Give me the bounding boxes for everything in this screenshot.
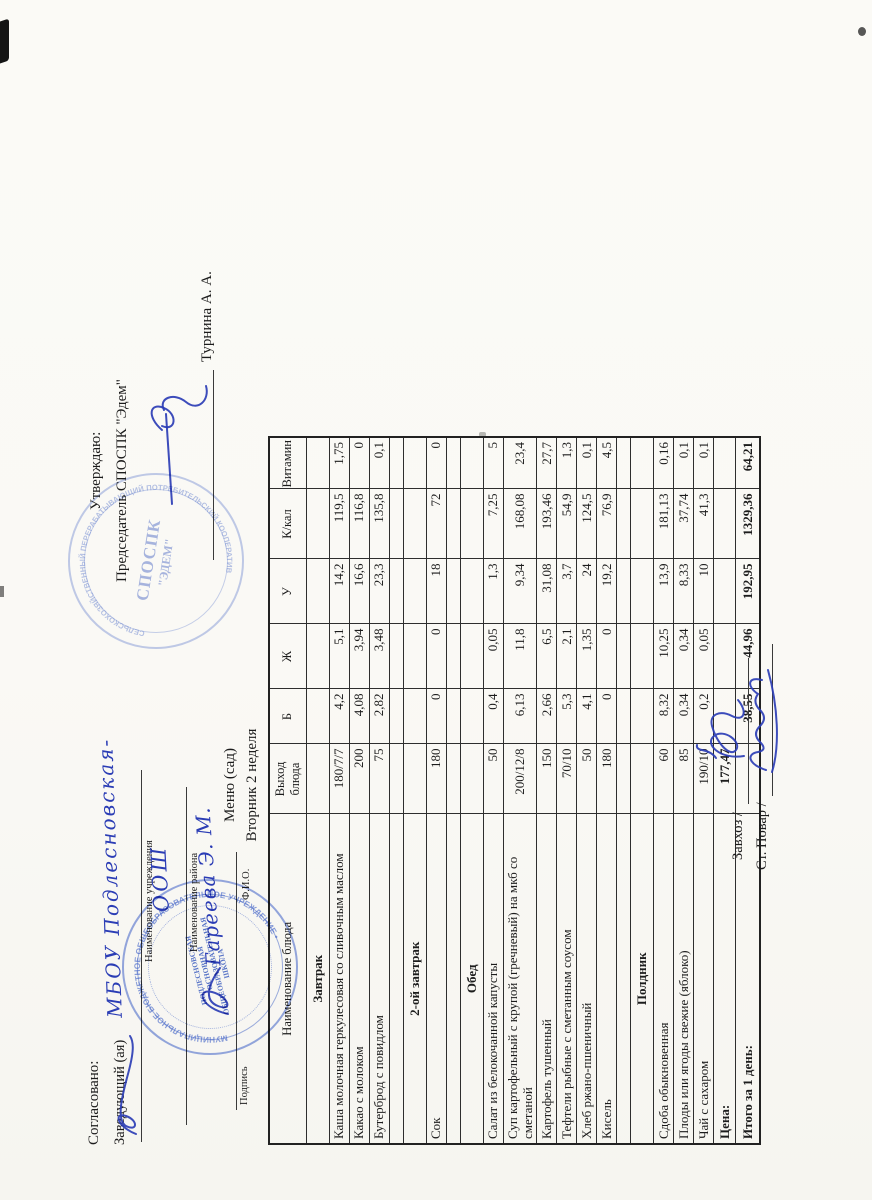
carbs-value: 13,9 [654,559,674,624]
protein-value: 0 [426,689,446,744]
carbs-value [403,559,426,624]
protein-value: 4,2 [329,689,349,744]
supply-manager-label: Завхоз / [730,812,747,860]
protein-value: 4,08 [349,689,369,744]
protein-value: 8,32 [654,689,674,744]
dish-row: Хлеб ржано-пшеничный504,11,3524124,50,1 [577,437,597,1144]
fat-value [389,624,403,689]
fat-value: 0,34 [674,624,694,689]
fat-value: 3,94 [349,624,369,689]
dish-row: Салат из белокочанной капусты500,40,051,… [483,437,503,1144]
dish-name: Бутерброд с повидлом [369,814,389,1144]
section-row: Полдник [631,437,654,1144]
carbs-value: 24 [577,559,597,624]
fat-value: 3,48 [369,624,389,689]
kcal-value: 119,5 [329,489,349,559]
dish-output: 75 [369,744,389,814]
empty-row [617,437,631,1144]
carbs-value: 9,34 [503,559,537,624]
menu-table: Наименование блюда Выход блюда Б Ж У К/к… [268,436,761,1145]
fat-value [306,624,329,689]
kcal-value: 72 [426,489,446,559]
kcal-value: 116,8 [349,489,369,559]
carbs-value: 23,3 [369,559,389,624]
dish-row: Тефтели рыбные с сметанным соусом70/105,… [557,437,577,1144]
dish-row: Суп картофельный с крупой (гречневый) на… [503,437,537,1144]
dish-output: 150 [537,744,557,814]
dish-output: 50 [577,744,597,814]
scanned-page: Согласовано: Заведующий (ая) МБОУ Подлес… [0,0,872,1200]
fat-value: 0 [597,624,617,689]
kcal-value: 124,5 [577,489,597,559]
col-header-kcal: К/кал [269,489,306,559]
protein-value [617,689,631,744]
protein-value: 0,34 [674,689,694,744]
edem-round-stamp: СЕЛЬСКОХОЗЯЙСТВЕННЫЙ ПЕРЕРАБАТЫВАЮЩИЙ ПО… [55,460,256,661]
vitamin-c-value: 23,4 [503,437,537,489]
dish-output [631,744,654,814]
fat-value: 11,8 [503,624,537,689]
vitamin-c-value [306,437,329,489]
fat-value: 5,1 [329,624,349,689]
dish-row: Картофель тушенный1502,666,531,08193,462… [537,437,557,1144]
vitamin-c-value: 0 [349,437,369,489]
vitamin-c-value [617,437,631,489]
carbs-value: 31,08 [537,559,557,624]
dish-name: Плоды или ягоды свежие (яблоко) [674,814,694,1144]
vitamin-c-value: 0,1 [369,437,389,489]
dish-name: Завтрак [306,814,329,1144]
menu-title: Меню (сад) [222,700,239,870]
document: Согласовано: Заведующий (ая) МБОУ Подлес… [0,0,872,1200]
vitamin-c-value: 4,5 [597,437,617,489]
vitamin-c-value [460,437,483,489]
protein-value: 6,13 [503,689,537,744]
protein-value: 0 [597,689,617,744]
dish-output [617,744,631,814]
dish-output: 200 [349,744,369,814]
carbs-value [631,559,654,624]
dish-output: 180/7/7 [329,744,349,814]
vitamin-c-value: 0,1 [674,437,694,489]
senior-cook-label: Ст. Повар / [754,802,771,870]
dish-name: Сок [426,814,446,1144]
dish-output: 200/12/8 [503,744,537,814]
carbs-value: 8,33 [674,559,694,624]
dish-row: Сок1800018720 [426,437,446,1144]
senior-cook-signature [734,660,776,776]
carbs-value [306,559,329,624]
kcal-value: 7,25 [483,489,503,559]
dish-name: Сдоба обыкновенная [654,814,674,1144]
vitamin-c-value [714,437,736,489]
vitamin-c-value: 0 [426,437,446,489]
menu-subtitle: Вторник 2 неделя [244,700,261,870]
kcal-value [446,489,460,559]
protein-value [403,689,426,744]
dish-name [389,814,403,1144]
dish-name: Обед [460,814,483,1144]
dish-name: Какао с молоком [349,814,369,1144]
dish-name: Картофель тушенный [537,814,557,1144]
fat-value [446,624,460,689]
kcal-value: 135,8 [369,489,389,559]
vitamin-c-value: 5 [483,437,503,489]
vitamin-c-value: 64,21 [736,437,761,489]
carbs-value: 1,3 [483,559,503,624]
fat-value: 6,5 [537,624,557,689]
kcal-value: 37,74 [674,489,694,559]
protein-value [460,689,483,744]
vitamin-c-value: 0,1 [577,437,597,489]
kcal-value: 76,9 [597,489,617,559]
protein-value [306,689,329,744]
fat-value [460,624,483,689]
carbs-value [617,559,631,624]
dish-name: Каша молочная геркулесовая со сливочным … [329,814,349,1144]
dish-name: Чай с сахаром [694,814,714,1144]
dish-name [446,814,460,1144]
fat-value [631,624,654,689]
col-header-protein: Б [269,689,306,744]
kcal-value: 181,13 [654,489,674,559]
fat-value [714,624,736,689]
dish-name: Салат из белокочанной капусты [483,814,503,1144]
handwriting-fragment [108,1030,144,1140]
dish-output: 85 [674,744,694,814]
fat-value: 1,35 [577,624,597,689]
menu-table-body: ЗавтракКаша молочная геркулесовая со сли… [306,437,760,1144]
kcal-value: 1329,36 [736,489,761,559]
carbs-value: 16,6 [349,559,369,624]
dish-output [403,744,426,814]
protein-value: 5,3 [557,689,577,744]
vitamin-c-value: 0,16 [654,437,674,489]
dish-row: Плоды или ягоды свежие (яблоко)850,340,3… [674,437,694,1144]
dish-row: Какао с молоком2004,083,9416,6116,80 [349,437,369,1144]
dish-output [389,744,403,814]
carbs-value [714,559,736,624]
protein-value: 2,82 [369,689,389,744]
price-row: Цена:177,47 [714,437,736,1144]
vitamin-c-value [403,437,426,489]
fat-value [617,624,631,689]
dish-row: Сдоба обыкновенная608,3210,2513,9181,130… [654,437,674,1144]
kcal-value: 193,46 [537,489,557,559]
section-row: Обед [460,437,483,1144]
approver-name: Турнина А. А. [199,271,216,362]
dish-name: Полдник [631,814,654,1144]
dish-output [306,744,329,814]
dish-row: Каша молочная геркулесовая со сливочным … [329,437,349,1144]
vitamin-c-value: 1,3 [557,437,577,489]
protein-value [389,689,403,744]
kcal-value [403,489,426,559]
signature-caption: Подпись [239,1066,250,1105]
kcal-value: 168,08 [503,489,537,559]
dish-output: 180 [426,744,446,814]
carbs-value: 18 [426,559,446,624]
protein-value: 4,1 [577,689,597,744]
dish-name: Кисель [597,814,617,1144]
vitamin-c-value: 1,75 [329,437,349,489]
dish-output [446,744,460,814]
kcal-value [714,489,736,559]
col-header-fat: Ж [269,624,306,689]
fat-value: 10,25 [654,624,674,689]
dish-name: Тефтели рыбные с сметанным соусом [557,814,577,1144]
fat-value: 0,05 [694,624,714,689]
carbs-value: 19,2 [597,559,617,624]
fat-value: 0 [426,624,446,689]
carbs-value [446,559,460,624]
dish-row: Кисель1800019,276,94,5 [597,437,617,1144]
dish-output: 60 [654,744,674,814]
empty-row [446,437,460,1144]
carbs-value: 10 [694,559,714,624]
fat-value [403,624,426,689]
col-header-carbs: У [269,559,306,624]
dish-row: Бутерброд с повидлом752,823,4823,3135,80… [369,437,389,1144]
dish-output [460,744,483,814]
fat-value: 0,05 [483,624,503,689]
dish-name: 2-ой завтрак [403,814,426,1144]
vitamin-c-value [446,437,460,489]
dish-output: 50 [483,744,503,814]
carbs-value [389,559,403,624]
dish-name: Цена: [714,814,736,1144]
protein-value [631,689,654,744]
dish-name [617,814,631,1144]
vitamin-c-value [631,437,654,489]
dish-name: Суп картофельный с крупой (гречневый) на… [503,814,537,1144]
col-header-vitamin-c: Витамин С [269,437,306,489]
agreed-label: Согласовано: [86,1061,103,1145]
section-row: Завтрак [306,437,329,1144]
protein-value: 2,66 [537,689,557,744]
carbs-value: 192,95 [736,559,761,624]
kcal-value [460,489,483,559]
kcal-value [631,489,654,559]
kcal-value: 54,9 [557,489,577,559]
dish-output: 180 [597,744,617,814]
protein-value: 0,4 [483,689,503,744]
vitamin-c-value [389,437,403,489]
dish-row: Чай с сахаром190/100,20,051041,30,1 [694,437,714,1144]
section-row: 2-ой завтрак [403,437,426,1144]
kcal-value: 41,3 [694,489,714,559]
fat-value: 2,1 [557,624,577,689]
vitamin-c-value: 0,1 [694,437,714,489]
kcal-value [306,489,329,559]
dish-output: 70/10 [557,744,577,814]
carbs-value [460,559,483,624]
carbs-value: 14,2 [329,559,349,624]
vitamin-c-value: 27,7 [537,437,557,489]
col-header-output: Выход блюда [269,744,306,814]
empty-row [389,437,403,1144]
kcal-value [389,489,403,559]
protein-value [446,689,460,744]
carbs-value: 3,7 [557,559,577,624]
dish-name: Хлеб ржано-пшеничный [577,814,597,1144]
kcal-value [617,489,631,559]
